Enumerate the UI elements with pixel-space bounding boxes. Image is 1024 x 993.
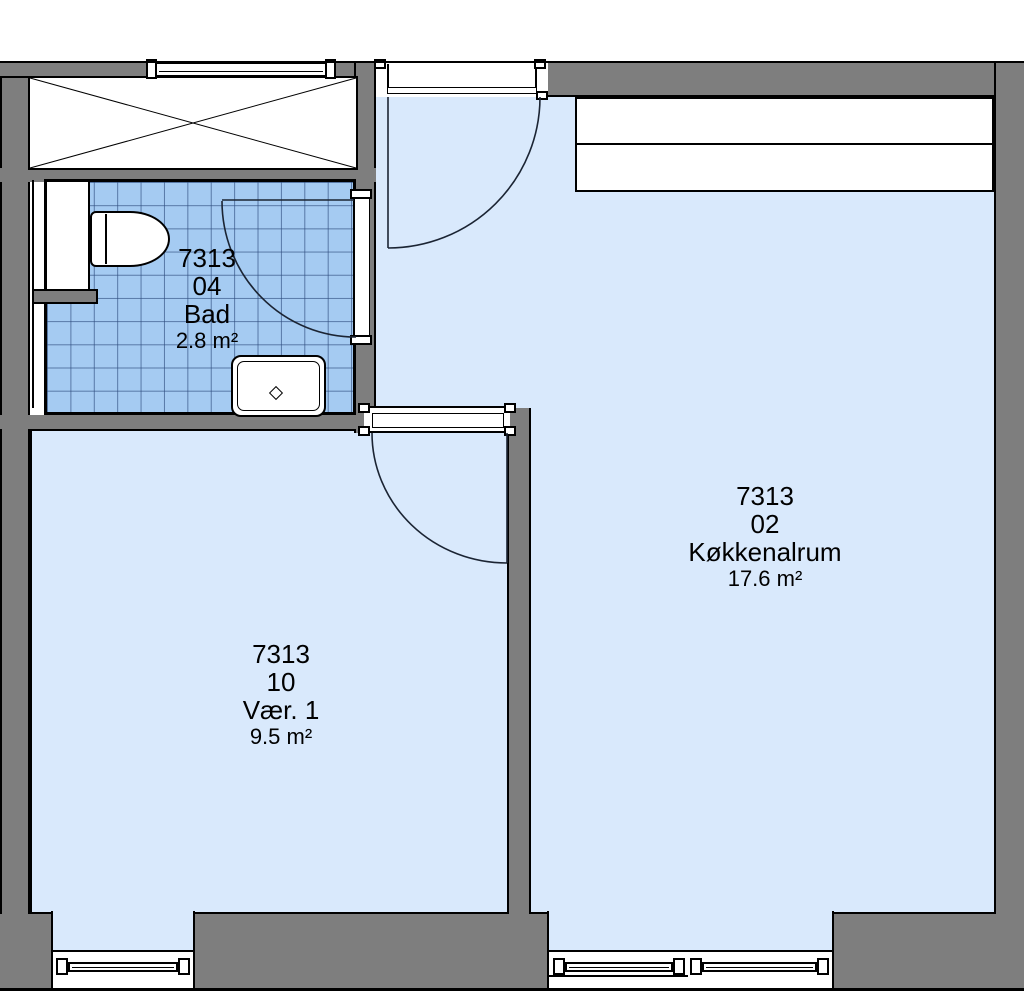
room-name: Bad (97, 300, 317, 328)
window-pane-line (569, 967, 669, 970)
room-name: Køkkenalrum (655, 538, 875, 566)
room-number: 7313 (97, 244, 317, 272)
window-pane-line (159, 71, 323, 77)
wall-right (994, 62, 1024, 914)
sliding-sash-line (549, 975, 688, 977)
room-name: Vær. 1 (171, 696, 391, 724)
room-number: 7313 (655, 482, 875, 510)
room-area: 9.5 m² (171, 724, 391, 750)
kitchen-counter (575, 97, 994, 192)
window-frame-bracket (178, 958, 190, 975)
bathroom-niche (47, 182, 90, 290)
window-frame-bracket (553, 958, 565, 975)
window-glass-top (155, 62, 327, 77)
window-frame-bracket (690, 958, 702, 975)
window-glass (702, 962, 817, 972)
window-frame-bracket (56, 958, 68, 975)
window-recess-koekkenalrum (547, 911, 834, 988)
entry-door-jamb (387, 64, 389, 88)
window-frame-bracket (817, 958, 829, 975)
room-unit: 02 (655, 510, 875, 538)
room-number: 7313 (171, 640, 391, 668)
vaer1-door-panel (372, 413, 504, 428)
bottom-edge-line (0, 988, 1024, 991)
door-frame-bracket (358, 426, 370, 436)
window-bay-floor (53, 911, 193, 952)
window-frame-bracket (673, 958, 685, 975)
vaer1-door-frame (364, 406, 510, 433)
entry-door-threshold (387, 87, 537, 94)
wall-band-below-bathroom (0, 415, 370, 429)
window-pane-line (706, 967, 813, 970)
room-label-vaer1: 7313 10 Vær. 1 9.5 m² (171, 640, 391, 750)
room-unit: 10 (171, 668, 391, 696)
floor-plan-canvas: 7313 04 Bad 2.8 m² 7313 10 Vær. 1 9.5 m²… (0, 0, 1024, 993)
door-frame-bracket (358, 403, 370, 413)
window-glass (68, 962, 178, 972)
door-frame-bracket (536, 91, 548, 100)
door-frame-bracket (350, 335, 372, 345)
shower-tray-icon (231, 355, 326, 417)
wall-partition-middle (507, 408, 531, 914)
window-recess-vaer1 (51, 911, 195, 988)
room-label-bad: 7313 04 Bad 2.8 m² (97, 244, 317, 354)
top-edge-line (0, 61, 1024, 63)
room-unit: 04 (97, 272, 317, 300)
room-area: 17.6 m² (655, 566, 875, 592)
door-frame-bracket (504, 403, 516, 413)
window-bay-floor (549, 911, 832, 952)
wall-left (0, 62, 30, 914)
door-frame-bracket (350, 189, 372, 199)
bathroom-door-opening (354, 197, 370, 337)
door-frame-bracket (504, 426, 516, 436)
closet-shaft (28, 76, 358, 170)
bathroom-wall-stub (32, 289, 98, 304)
shower-tray-inner (237, 361, 320, 411)
entry-door-frame (376, 62, 548, 97)
room-area: 2.8 m² (97, 328, 317, 354)
counter-divider (577, 99, 992, 145)
wall-top-right (538, 62, 994, 97)
window-pane-line (72, 967, 174, 970)
bathroom-cabin-line (32, 180, 34, 408)
window-glass (565, 962, 673, 972)
room-label-koekkenalrum: 7313 02 Køkkenalrum 17.6 m² (655, 482, 875, 592)
